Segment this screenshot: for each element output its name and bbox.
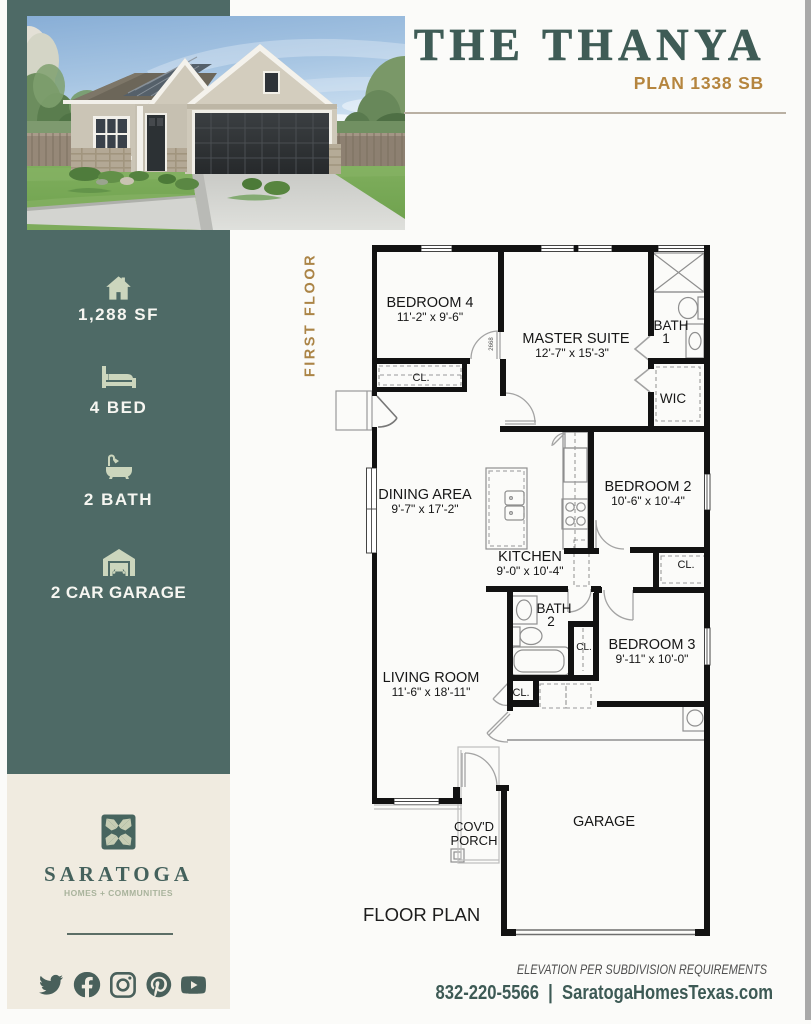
svg-text:BATH: BATH [653,318,688,333]
svg-text:10'-6" x 10'-4": 10'-6" x 10'-4" [611,494,685,508]
svg-text:CL.: CL. [412,372,429,384]
svg-text:11'-6" x 18'-11": 11'-6" x 18'-11" [392,685,471,699]
svg-text:BEDROOM 3: BEDROOM 3 [608,637,695,653]
svg-text:FLOOR PLAN: FLOOR PLAN [363,904,480,925]
svg-text:KITCHEN: KITCHEN [498,549,562,565]
svg-text:BEDROOM 2: BEDROOM 2 [604,479,691,495]
svg-text:GARAGE: GARAGE [573,814,635,830]
svg-text:CL.: CL. [677,559,694,571]
svg-text:12'-7" x 15'-3": 12'-7" x 15'-3" [535,346,609,360]
svg-text:BEDROOM 4: BEDROOM 4 [386,295,473,311]
svg-text:DINING AREA: DINING AREA [378,487,472,503]
svg-text:2: 2 [547,614,555,629]
svg-text:PORCH: PORCH [451,833,498,848]
svg-text:WIC: WIC [660,391,686,406]
svg-text:11'-2" x 9'-6": 11'-2" x 9'-6" [397,310,463,324]
svg-text:1: 1 [662,331,670,346]
svg-text:9'-0" x 10'-4": 9'-0" x 10'-4" [496,564,563,578]
svg-text:9'-7" x 17'-2": 9'-7" x 17'-2" [391,502,458,516]
svg-text:LIVING ROOM: LIVING ROOM [383,670,480,686]
svg-text:CL.: CL. [576,642,592,653]
svg-text:COV'D: COV'D [454,819,494,834]
svg-text:CL.: CL. [512,687,529,699]
svg-text:MASTER SUITE: MASTER SUITE [522,331,629,347]
svg-text:2668: 2668 [489,337,495,351]
svg-text:9'-11" x 10'-0": 9'-11" x 10'-0" [616,652,689,666]
